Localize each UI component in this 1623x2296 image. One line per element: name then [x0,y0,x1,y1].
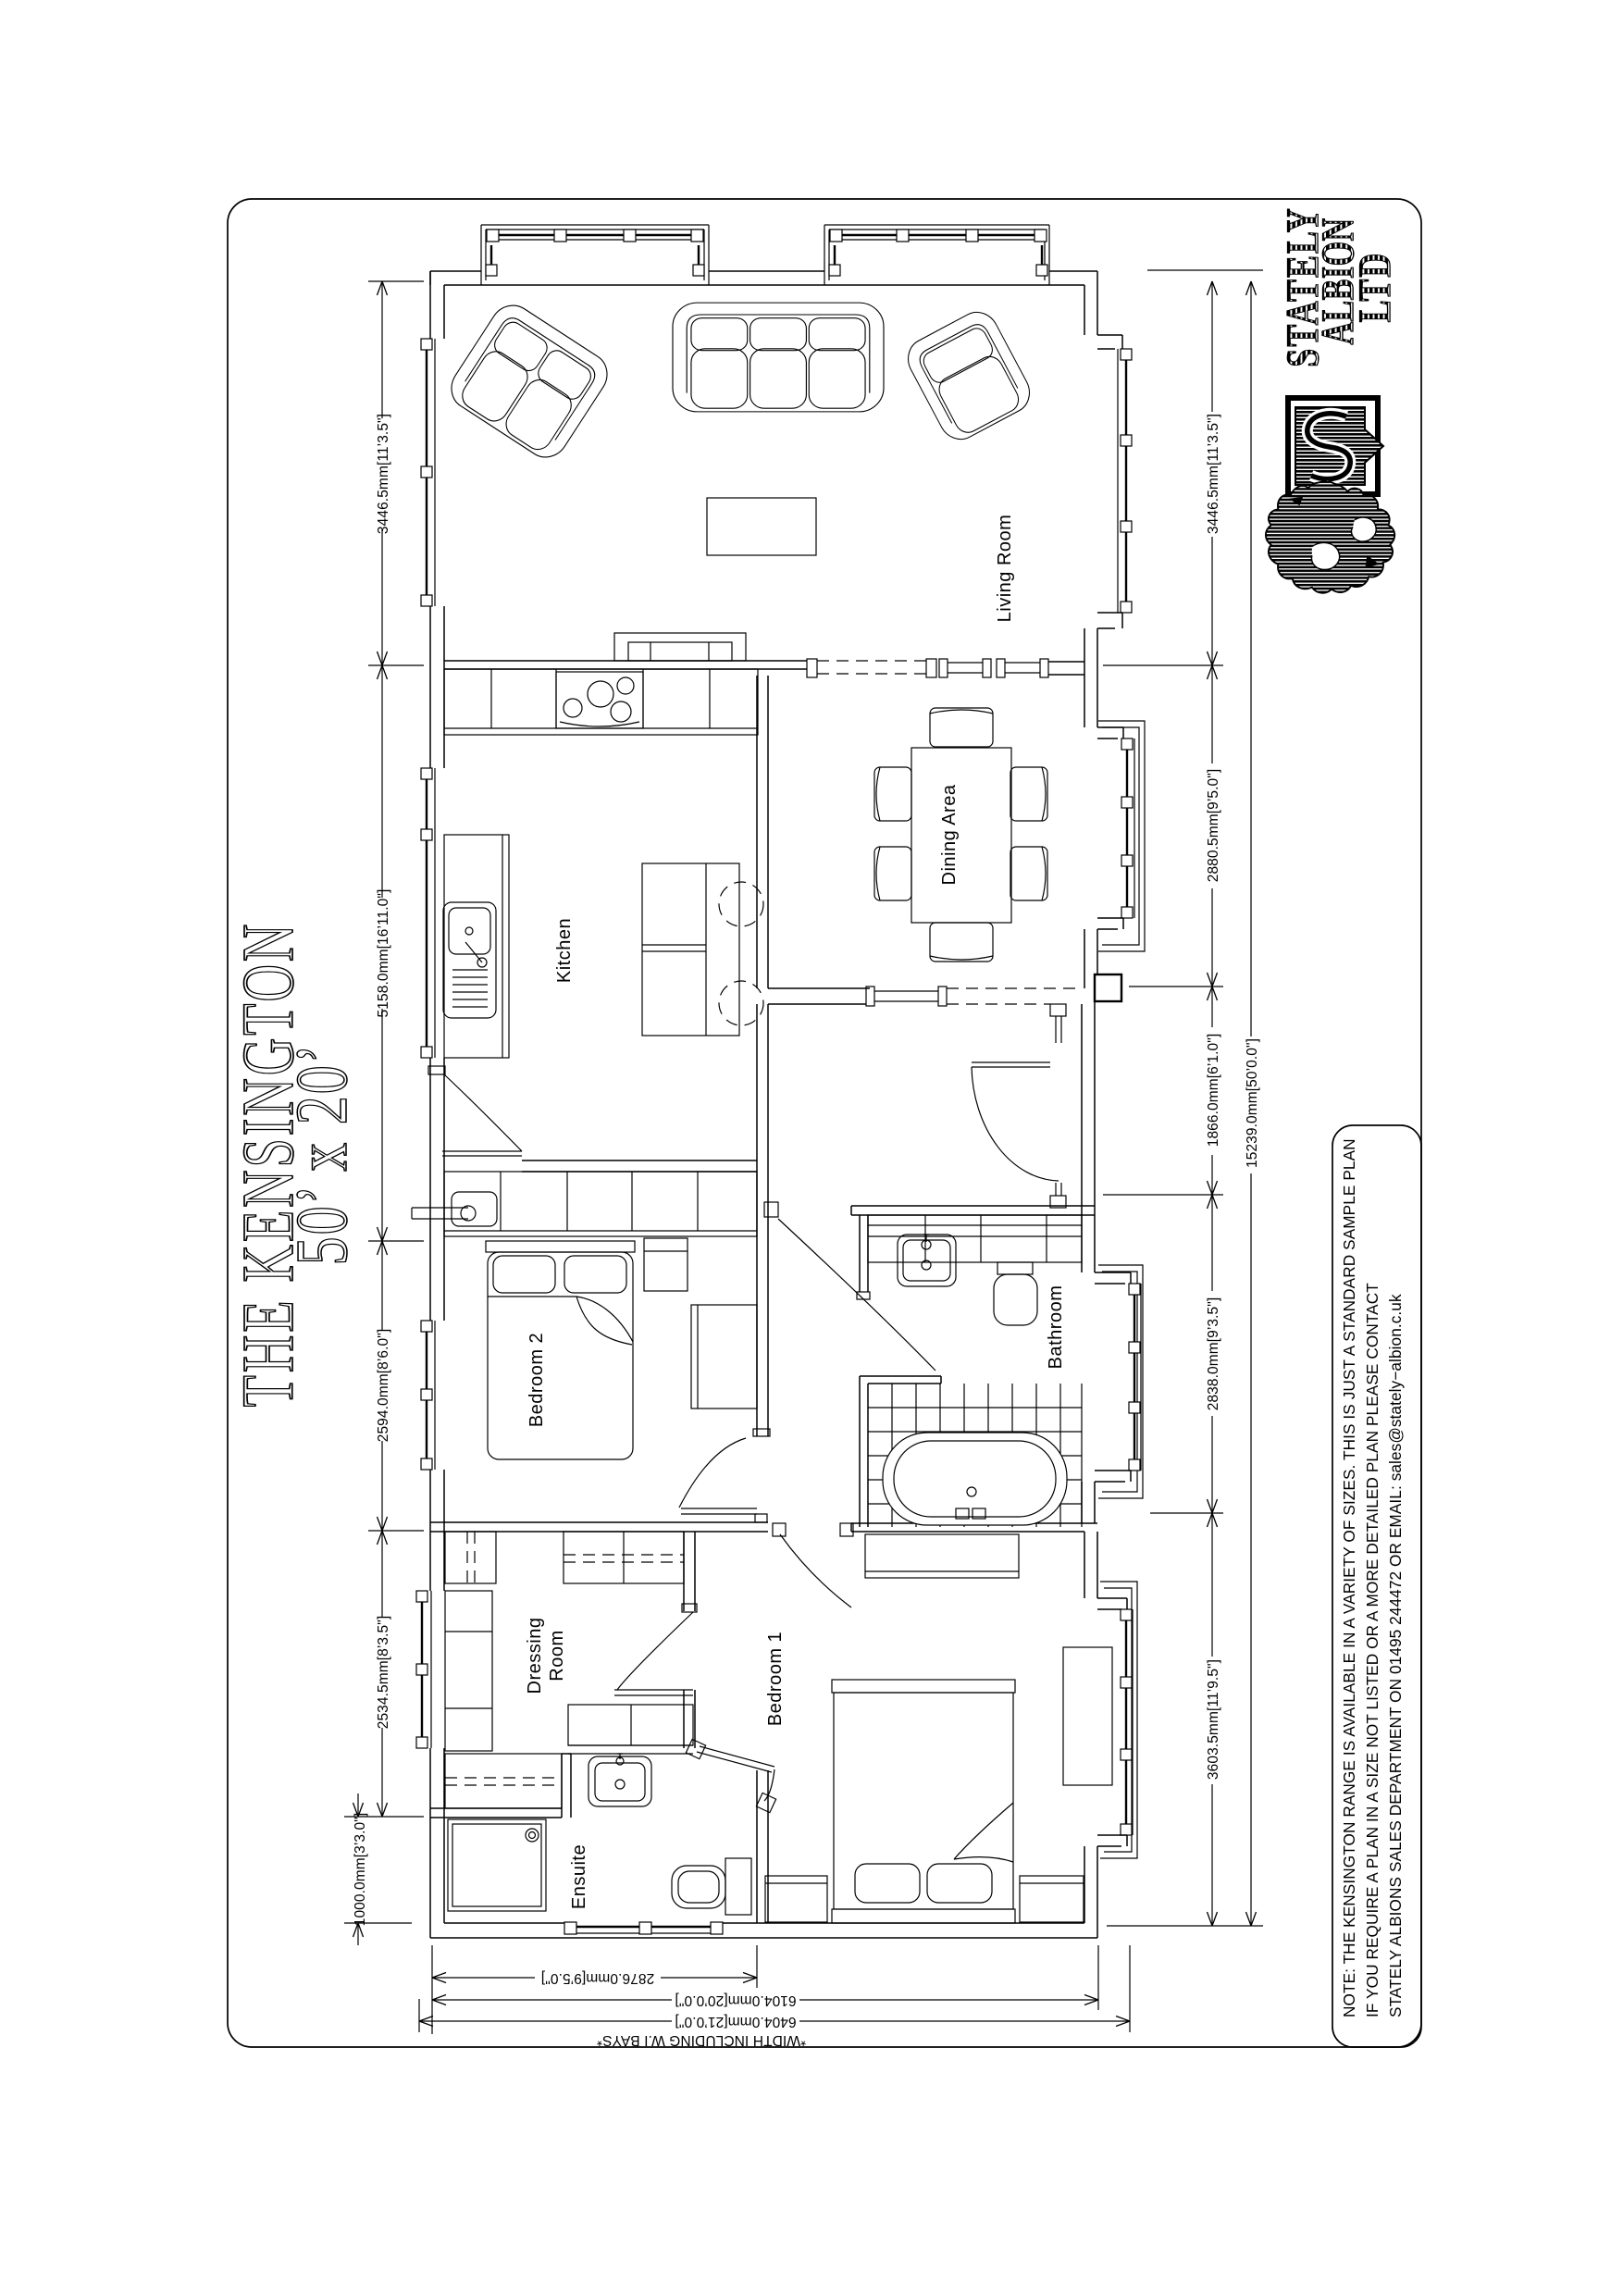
svg-text:3446.5mm[11’3.5"]: 3446.5mm[11’3.5"] [376,414,391,534]
svg-text:50’ x 20’: 50’ x 20’ [282,1043,363,1266]
svg-text:2876.0mm[9’5.0"]: 2876.0mm[9’5.0"] [541,1970,655,1986]
svg-text:Ensuite: Ensuite [569,1844,589,1909]
svg-text:LTD: LTD [1349,252,1400,323]
svg-text:Bathroom: Bathroom [1046,1285,1066,1370]
svg-text:1000.0mm[3’3.0"]: 1000.0mm[3’3.0"] [353,1813,368,1927]
svg-text:Dressing: Dressing [525,1618,545,1694]
svg-text:Living Room: Living Room [995,515,1015,623]
svg-text:Dining Area: Dining Area [939,784,960,885]
svg-text:*WIDTH INCLUDING W.I BAYS*: *WIDTH INCLUDING W.I BAYS* [597,2032,806,2048]
svg-text:Bedroom 1: Bedroom 1 [765,1632,786,1726]
svg-text:3603.5mm[11’9.5"]: 3603.5mm[11’9.5"] [1206,1659,1221,1780]
svg-text:3446.5mm[11’3.5"]: 3446.5mm[11’3.5"] [1206,414,1221,534]
svg-text:2880.5mm[9’5.0"]: 2880.5mm[9’5.0"] [1206,769,1221,883]
svg-text:15239.0mm[50’0.0"]: 15239.0mm[50’0.0"] [1245,1038,1260,1168]
svg-text:2838.0mm[9’3.5"]: 2838.0mm[9’3.5"] [1206,1297,1221,1411]
svg-text:IF YOU REQUIRE A PLAN IN A SIZ: IF YOU REQUIRE A PLAN IN A SIZE NOT LIST… [1363,1283,1381,2017]
svg-text:1866.0mm[6’1.0"]: 1866.0mm[6’1.0"] [1206,1034,1221,1148]
svg-text:6104.0mm[20’0.0"]: 6104.0mm[20’0.0"] [675,1992,796,2008]
svg-text:5158.0mm[16’11.0"]: 5158.0mm[16’11.0"] [376,889,391,1018]
svg-text:STATELY ALBIONS SALES DEPARTME: STATELY ALBIONS SALES DEPARTMENT ON 0149… [1386,1294,1405,2017]
svg-text:6404.0mm[21’0.0"]: 6404.0mm[21’0.0"] [675,2014,796,2029]
svg-text:Kitchen: Kitchen [554,918,575,983]
svg-text:2594.0mm[8’6.0"]: 2594.0mm[8’6.0"] [376,1329,391,1443]
svg-text:2534.5mm[8’3.5"]: 2534.5mm[8’3.5"] [376,1616,391,1730]
svg-text:Bedroom 2: Bedroom 2 [527,1333,547,1427]
svg-text:NOTE: THE KENSINGTON RANGE IS: NOTE: THE KENSINGTON RANGE IS AVAILABLE … [1340,1138,1358,2017]
svg-text:Room: Room [547,1630,567,1681]
